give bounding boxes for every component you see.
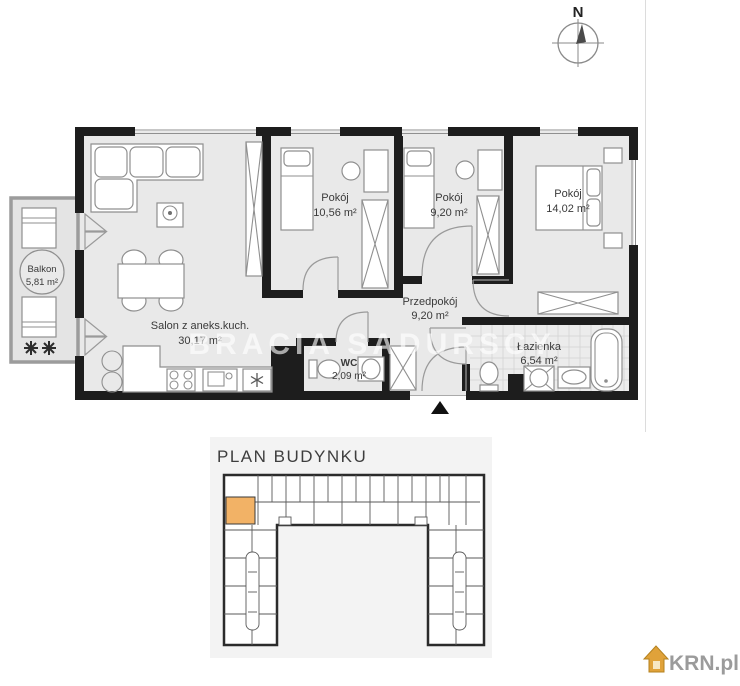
plant-icon [42,341,56,355]
compass-rose-icon: N [552,4,604,67]
compass-north-label: N [573,4,584,21]
chair [456,161,474,179]
house-icon-window [653,661,660,669]
balcony-area: 5,81 m² [26,277,58,288]
pokoj1-name: Pokój [321,192,349,204]
desk [478,150,502,190]
building-plan-panel: PLAN BUDYNKU [210,437,492,658]
chair [342,162,360,180]
side-table-lamp [157,203,183,227]
pokoj2-area: 9,20 m² [430,207,468,219]
krn-logo[interactable]: KRN.pl [644,646,739,675]
sink-icon [558,367,590,388]
wardrobe [477,196,499,274]
apartment-plan: Balkon 5,81 m² [11,127,638,414]
przedpokoj-name: Przedpokój [402,296,457,308]
bathtub-icon [591,329,622,391]
building-plan-title: PLAN BUDYNKU [217,447,367,466]
balcony-lounger-top [22,208,56,248]
desk [364,150,388,192]
pokoj3-area: 14,02 m² [546,203,590,215]
bed-single [281,148,313,230]
toilet-icon [480,362,498,391]
salon-wardrobe [246,142,262,276]
stove-icon [167,369,195,391]
highlighted-unit [226,497,255,524]
wardrobe [538,292,618,314]
pokoj1-area: 10,56 m² [313,207,357,219]
logo-text: KRN.pl [669,652,739,675]
nightstand [604,233,622,248]
przedpokoj-area: 9,20 m² [411,310,449,322]
balcony-name: Balkon [27,264,56,275]
kitchen-sink-icon [203,369,237,391]
plant-icon [24,341,38,355]
balcony: Balkon 5,81 m² [11,198,78,362]
entrance-marker [431,401,449,414]
floorplan-page: N [0,0,740,686]
wc-area: 2,09 m² [332,371,367,382]
nightstand [604,148,622,163]
washing-machine-icon [524,366,554,391]
wardrobe [362,200,388,288]
pokoj2-name: Pokój [435,192,463,204]
watermark-text: BRACIA SADURSCY [188,328,555,361]
fridge-snowflake-icon [243,369,271,391]
pokoj3-name: Pokój [554,188,582,200]
balcony-lounger-bottom [22,297,56,337]
